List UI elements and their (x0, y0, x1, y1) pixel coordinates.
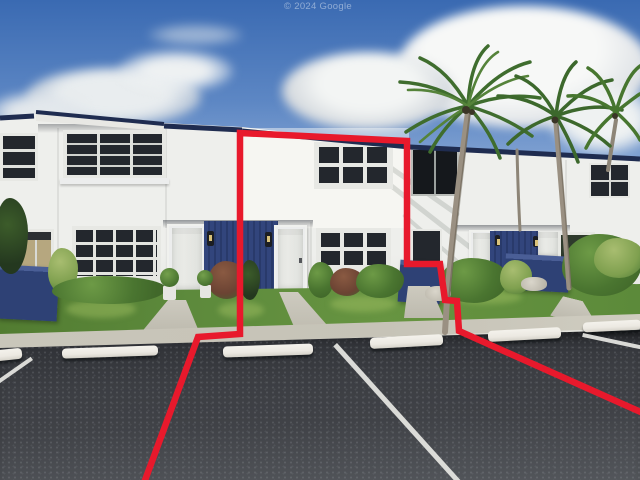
window-sill (60, 178, 169, 184)
porch-light (533, 236, 538, 247)
hedge (594, 238, 640, 278)
planter-pot (163, 286, 176, 300)
street-view-photo: © 2024 Google (0, 0, 640, 480)
topiary (160, 268, 179, 287)
window (63, 130, 166, 179)
planter-pot (200, 285, 211, 298)
window (411, 148, 459, 196)
google-watermark: © 2024 Google (284, 1, 404, 12)
landscape-rock (521, 277, 547, 291)
window (314, 142, 393, 189)
cloud (118, 50, 233, 92)
landscape-rock (425, 286, 451, 301)
porch-light (207, 231, 214, 246)
window (411, 229, 442, 263)
window (0, 133, 38, 181)
door-handle (299, 258, 302, 263)
lawn-light-patch (330, 296, 396, 312)
topiary (197, 270, 213, 286)
porch-light (495, 235, 500, 246)
cloud (282, 52, 454, 130)
window (589, 163, 630, 198)
cloud (148, 24, 243, 46)
porch-light (265, 232, 272, 247)
lawn-light-patch (218, 302, 264, 318)
window (72, 226, 161, 280)
